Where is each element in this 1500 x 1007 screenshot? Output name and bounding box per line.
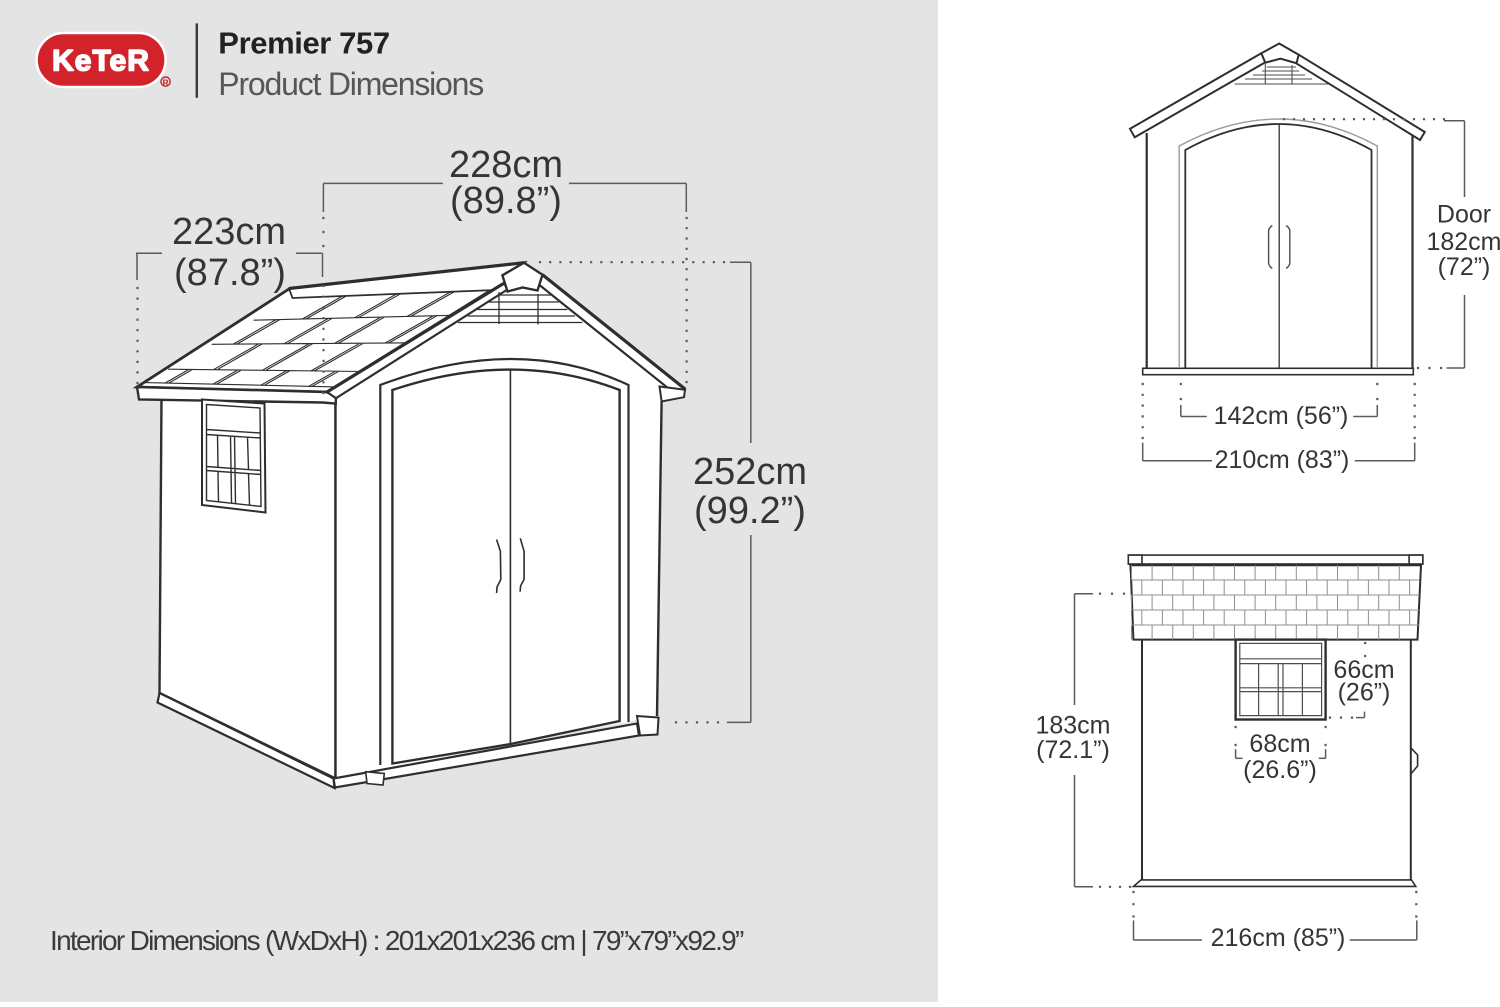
svg-text:R: R (163, 77, 169, 87)
svg-text:210cm (83”): 210cm (83”) (1215, 446, 1350, 474)
svg-text:68cm: 68cm (1249, 730, 1310, 758)
svg-text:(72”): (72”) (1438, 253, 1491, 281)
svg-text:142cm (56”): 142cm (56”) (1214, 402, 1349, 430)
svg-text:(26”): (26”) (1338, 679, 1391, 707)
svg-text:182cm: 182cm (1426, 228, 1500, 256)
svg-text:Product Dimensions: Product Dimensions (218, 66, 483, 102)
svg-text:(89.8”): (89.8”) (450, 180, 562, 222)
svg-text:(87.8”): (87.8”) (174, 252, 286, 294)
svg-text:(26.6”): (26.6”) (1243, 756, 1317, 784)
svg-text:Premier 757: Premier 757 (218, 26, 389, 61)
svg-text:Door: Door (1437, 201, 1491, 229)
svg-text:252cm: 252cm (693, 451, 807, 493)
svg-text:Interior Dimensions (WxDxH) :: Interior Dimensions (WxDxH) : 201x201x23… (50, 925, 744, 956)
svg-text:223cm: 223cm (172, 211, 286, 253)
svg-text:(72.1”): (72.1”) (1036, 736, 1110, 764)
svg-text:KeTeR: KeTeR (52, 45, 150, 78)
svg-text:216cm (85”): 216cm (85”) (1211, 924, 1346, 952)
svg-text:(99.2”): (99.2”) (694, 490, 806, 532)
